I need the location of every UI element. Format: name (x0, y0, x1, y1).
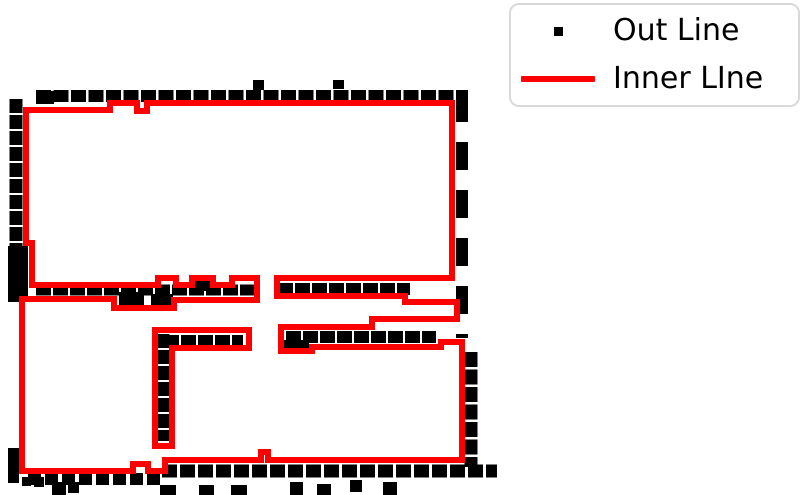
figure-canvas: Out Line Inner LIne (0, 0, 800, 495)
out-line-dot (22, 477, 31, 486)
legend-item-inner-line: Inner LIne (511, 55, 798, 103)
out-line-dot (52, 482, 66, 495)
out-line-dot (68, 482, 79, 493)
out-line-dot (350, 480, 362, 492)
out-line-dot (231, 485, 247, 495)
out-line-block (253, 80, 264, 90)
out-line-block (36, 91, 54, 104)
legend: Out Line Inner LIne (509, 3, 800, 107)
out-line-block (333, 80, 344, 89)
out-line-block (8, 246, 28, 302)
out-line-dot (34, 477, 44, 487)
out-line-block (8, 448, 19, 483)
out-line-block (195, 281, 211, 291)
inner-line-island-wall (155, 330, 249, 446)
out-line-dot (199, 485, 214, 495)
inner-line-marker-icon (520, 76, 596, 82)
legend-item-out-line: Out Line (511, 7, 798, 55)
legend-label-inner-line: Inner LIne (613, 64, 763, 94)
out-line-dot (317, 484, 331, 495)
out-line-dot (160, 485, 176, 495)
out-line-block (119, 292, 144, 305)
out-line-marker-icon (520, 27, 596, 36)
out-line-block (456, 90, 468, 112)
out-line-block (151, 294, 173, 306)
legend-label-out-line: Out Line (613, 16, 739, 46)
out-line-dot (383, 482, 397, 495)
out-line-dot (290, 482, 303, 495)
